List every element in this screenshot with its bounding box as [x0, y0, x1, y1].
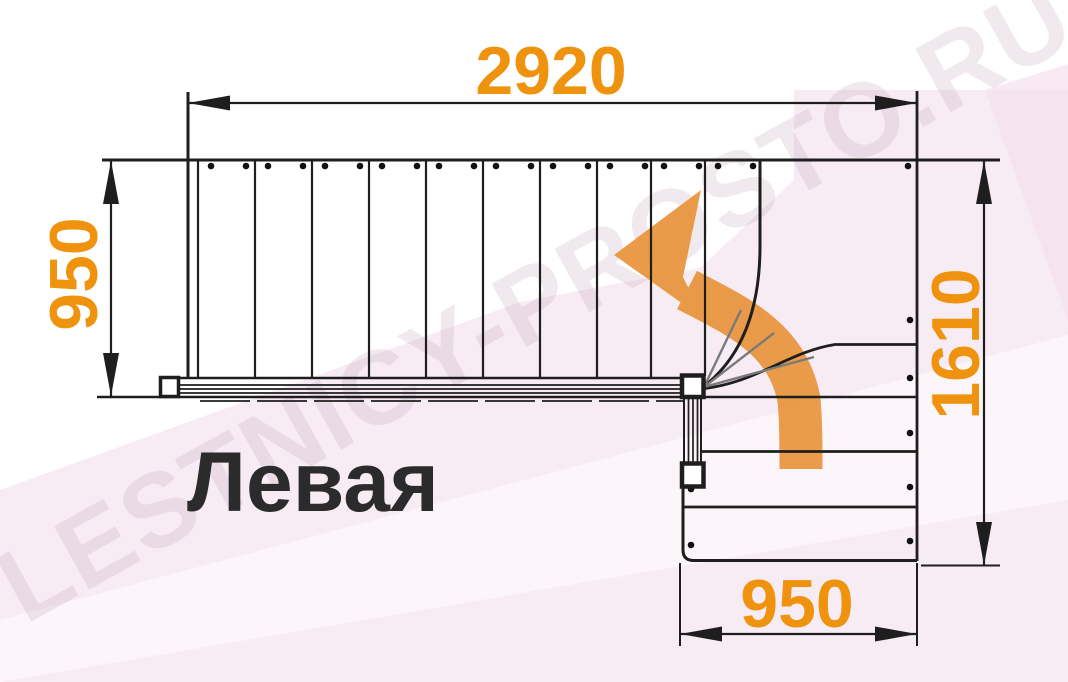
newel-post-bottom: [682, 464, 704, 487]
staircase-plan-svg: LESTNICY-PROSTO.RU: [0, 0, 1068, 682]
dimension-label-top: 2920: [475, 33, 626, 109]
plan-title: Левая: [187, 435, 439, 529]
dimension-label-bottom: 950: [740, 566, 853, 642]
newel-post-corner: [682, 376, 704, 398]
newel-post-left: [161, 378, 179, 397]
dimension-label-left: 950: [36, 217, 112, 330]
staircase-plan-drawing: LESTNICY-PROSTO.RU: [0, 0, 1068, 682]
dimension-label-right: 1610: [918, 268, 994, 419]
